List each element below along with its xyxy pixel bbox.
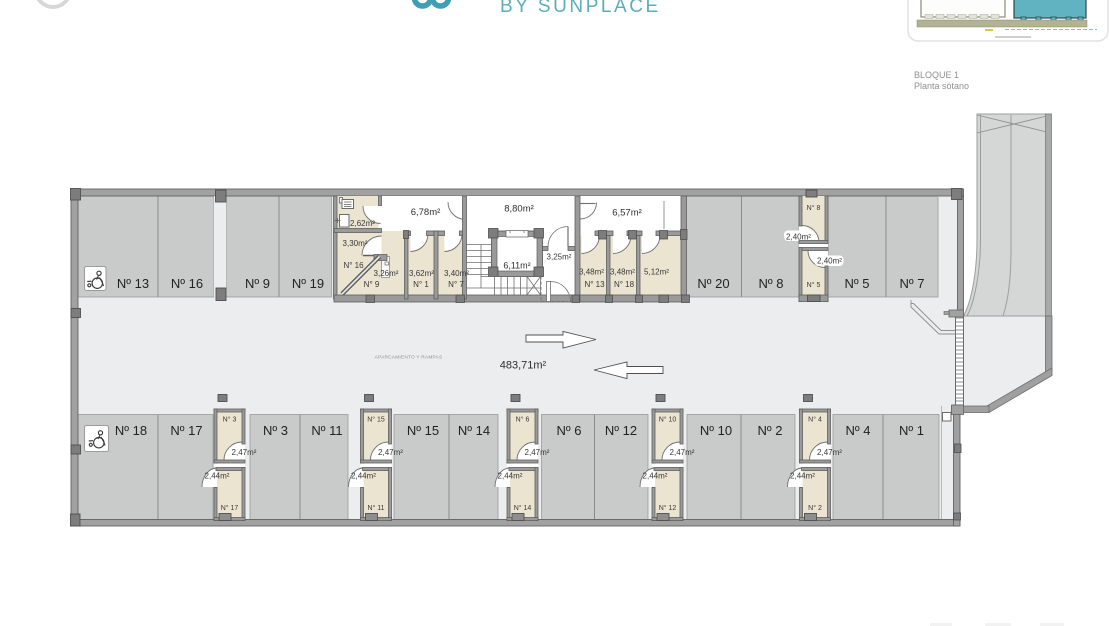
svg-text:483,71m²: 483,71m² bbox=[500, 360, 547, 372]
svg-text:Nº 17: Nº 17 bbox=[170, 423, 202, 438]
svg-text:8,80m²: 8,80m² bbox=[504, 204, 534, 215]
svg-text:N° 5: N° 5 bbox=[807, 281, 821, 289]
svg-text:6,57m²: 6,57m² bbox=[612, 208, 642, 219]
svg-text:N° 1: N° 1 bbox=[413, 280, 429, 289]
svg-text:N° 12: N° 12 bbox=[659, 504, 677, 512]
svg-text:3,48m²: 3,48m² bbox=[610, 268, 635, 277]
svg-text:APARCAMIENTO Y RAMPAS: APARCAMIENTO Y RAMPAS bbox=[375, 355, 443, 361]
svg-text:Nº 9: Nº 9 bbox=[245, 276, 270, 291]
svg-text:2,47m²: 2,47m² bbox=[232, 448, 257, 457]
svg-text:2,44m²: 2,44m² bbox=[351, 472, 376, 481]
svg-text:2,47m²: 2,47m² bbox=[670, 448, 695, 457]
svg-text:Nº 6: Nº 6 bbox=[557, 423, 582, 438]
svg-text:N° 15: N° 15 bbox=[367, 416, 385, 424]
svg-text:5,12m²: 5,12m² bbox=[644, 268, 669, 277]
svg-text:N° 6: N° 6 bbox=[516, 416, 530, 424]
svg-text:3,30m²: 3,30m² bbox=[343, 239, 368, 248]
svg-text:N° 8: N° 8 bbox=[807, 204, 821, 212]
svg-text:N° 11: N° 11 bbox=[367, 504, 384, 512]
svg-text:2,44m²: 2,44m² bbox=[205, 472, 230, 481]
svg-text:N° 4: N° 4 bbox=[808, 416, 822, 424]
svg-text:Planta sótano: Planta sótano bbox=[914, 81, 969, 91]
svg-text:2,44m²: 2,44m² bbox=[643, 472, 668, 481]
svg-text:N° 16: N° 16 bbox=[343, 261, 364, 270]
svg-text:BY SUNPLACE: BY SUNPLACE bbox=[500, 0, 661, 17]
svg-text:2,40m²: 2,40m² bbox=[817, 257, 842, 266]
svg-text:Nº 2: Nº 2 bbox=[758, 423, 783, 438]
svg-text:Nº 20: Nº 20 bbox=[697, 276, 729, 291]
svg-text:2,62m²: 2,62m² bbox=[350, 219, 375, 228]
svg-text:3,25m²: 3,25m² bbox=[547, 253, 572, 262]
svg-text:2,44m²: 2,44m² bbox=[790, 472, 815, 481]
svg-text:2,47m²: 2,47m² bbox=[525, 448, 550, 457]
svg-text:N° 10: N° 10 bbox=[659, 416, 677, 424]
svg-text:3,48m²: 3,48m² bbox=[579, 268, 604, 277]
svg-text:Nº 3: Nº 3 bbox=[263, 423, 288, 438]
svg-text:Nº 13: Nº 13 bbox=[117, 276, 149, 291]
svg-text:N° 3: N° 3 bbox=[223, 416, 237, 424]
svg-text:6,78m²: 6,78m² bbox=[411, 207, 441, 218]
svg-text:N° 9: N° 9 bbox=[364, 280, 380, 289]
svg-text:2,47m²: 2,47m² bbox=[817, 448, 842, 457]
svg-text:2,40m²: 2,40m² bbox=[786, 233, 811, 242]
svg-text:2,44m²: 2,44m² bbox=[498, 472, 523, 481]
svg-text:Nº 18: Nº 18 bbox=[115, 423, 147, 438]
svg-text:N° 18: N° 18 bbox=[614, 280, 635, 289]
svg-text:3,26m²: 3,26m² bbox=[374, 269, 399, 278]
svg-text:2,47m²: 2,47m² bbox=[378, 448, 403, 457]
svg-text:Nº 16: Nº 16 bbox=[171, 276, 203, 291]
svg-text:6,11m²: 6,11m² bbox=[503, 261, 530, 271]
svg-text:Nº 4: Nº 4 bbox=[846, 423, 871, 438]
svg-text:Nº 10: Nº 10 bbox=[700, 423, 732, 438]
svg-text:N° 13: N° 13 bbox=[584, 280, 605, 289]
svg-text:Nº 5: Nº 5 bbox=[845, 276, 870, 291]
svg-text:Nº 11: Nº 11 bbox=[311, 423, 342, 438]
svg-text:N° 7: N° 7 bbox=[448, 280, 464, 289]
svg-text:N° 2: N° 2 bbox=[808, 504, 822, 512]
svg-text:3,40m²: 3,40m² bbox=[444, 269, 469, 278]
svg-text:Nº 8: Nº 8 bbox=[759, 276, 784, 291]
svg-text:Nº 19: Nº 19 bbox=[292, 276, 324, 291]
svg-text:Nº 14: Nº 14 bbox=[458, 423, 490, 438]
svg-text:N° 17: N° 17 bbox=[221, 504, 239, 512]
svg-text:3,62m²: 3,62m² bbox=[409, 269, 434, 278]
svg-text:BLOQUE 1: BLOQUE 1 bbox=[914, 70, 959, 80]
svg-text:N° 14: N° 14 bbox=[514, 504, 532, 512]
svg-text:Nº 7: Nº 7 bbox=[900, 276, 925, 291]
svg-text:Nº 15: Nº 15 bbox=[407, 423, 439, 438]
svg-text:Nº 1: Nº 1 bbox=[899, 423, 924, 438]
svg-text:Nº 12: Nº 12 bbox=[605, 423, 637, 438]
